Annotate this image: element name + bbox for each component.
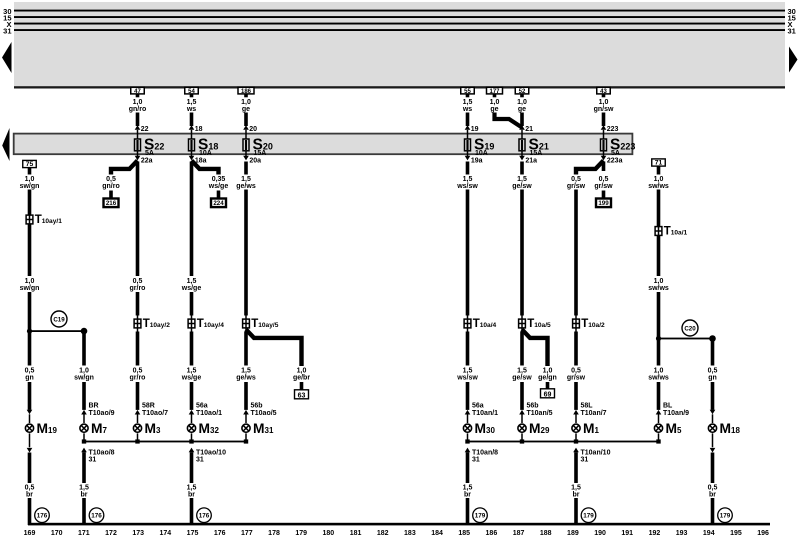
- svg-text:gn: gn: [708, 374, 717, 381]
- svg-text:ge: ge: [518, 106, 526, 113]
- svg-text:186: 186: [486, 530, 498, 537]
- svg-text:gr/ro: gr/ro: [130, 285, 146, 292]
- svg-text:T10an/1: T10an/1: [472, 410, 498, 417]
- svg-text:T10ao/7: T10ao/7: [142, 410, 168, 417]
- svg-text:22a: 22a: [141, 157, 153, 164]
- svg-text:T10an/7: T10an/7: [581, 410, 607, 417]
- svg-text:190: 190: [594, 530, 606, 537]
- svg-text:179: 179: [583, 513, 594, 520]
- svg-text:58R: 58R: [142, 403, 155, 410]
- svg-text:ws/ge: ws/ge: [181, 374, 202, 381]
- svg-text:194: 194: [703, 530, 715, 537]
- svg-text:ge/ws: ge/ws: [236, 183, 256, 190]
- svg-text:sw/gn: sw/gn: [20, 285, 40, 292]
- svg-text:T10an/8: T10an/8: [472, 449, 498, 456]
- svg-text:20a: 20a: [249, 157, 261, 164]
- svg-text:180: 180: [323, 530, 335, 537]
- svg-text:C20: C20: [684, 326, 696, 333]
- svg-text:5A: 5A: [611, 150, 620, 157]
- svg-text:ws/ge: ws/ge: [208, 183, 229, 190]
- svg-text:ws/sw: ws/sw: [456, 374, 478, 381]
- svg-text:181: 181: [350, 530, 362, 537]
- svg-text:191: 191: [621, 530, 633, 537]
- svg-text:179: 179: [475, 513, 486, 520]
- svg-text:br: br: [464, 491, 471, 498]
- svg-text:T10an/10: T10an/10: [581, 449, 611, 456]
- svg-text:C19: C19: [53, 317, 65, 324]
- svg-text:gn: gn: [25, 374, 34, 381]
- svg-text:175: 175: [187, 530, 199, 537]
- svg-text:176: 176: [214, 530, 226, 537]
- svg-text:T10ao/10: T10ao/10: [196, 449, 226, 456]
- svg-text:br: br: [81, 491, 88, 498]
- svg-text:56b: 56b: [527, 403, 539, 410]
- svg-text:br: br: [709, 491, 716, 498]
- svg-text:gr/sw: gr/sw: [594, 183, 613, 190]
- svg-text:171: 171: [78, 530, 90, 537]
- svg-text:gn/ro: gn/ro: [129, 106, 147, 113]
- svg-text:sw/gn: sw/gn: [20, 183, 40, 190]
- svg-text:174: 174: [160, 530, 172, 537]
- svg-text:31: 31: [581, 457, 589, 464]
- svg-text:22: 22: [141, 126, 149, 133]
- svg-text:193: 193: [676, 530, 688, 537]
- svg-text:gn/ro: gn/ro: [102, 183, 120, 190]
- svg-text:br: br: [573, 491, 580, 498]
- svg-text:10A: 10A: [475, 150, 488, 157]
- svg-text:ge/ws: ge/ws: [236, 374, 256, 381]
- svg-text:189: 189: [567, 530, 579, 537]
- svg-text:21a: 21a: [525, 157, 537, 164]
- svg-text:182: 182: [377, 530, 389, 537]
- svg-text:gn/sw: gn/sw: [594, 106, 614, 113]
- svg-text:172: 172: [105, 530, 117, 537]
- svg-text:223: 223: [607, 126, 619, 133]
- svg-text:br: br: [26, 491, 33, 498]
- svg-text:216: 216: [106, 200, 117, 207]
- svg-text:ge: ge: [242, 106, 250, 113]
- svg-text:71: 71: [655, 160, 663, 167]
- svg-text:192: 192: [649, 530, 661, 537]
- svg-text:169: 169: [24, 530, 36, 537]
- svg-text:196: 196: [757, 530, 769, 537]
- svg-text:176: 176: [91, 513, 102, 520]
- svg-text:31: 31: [89, 457, 97, 464]
- svg-text:BL: BL: [663, 403, 673, 410]
- svg-text:56b: 56b: [251, 403, 263, 410]
- svg-text:ge/br: ge/br: [293, 374, 310, 381]
- svg-text:179: 179: [295, 530, 307, 537]
- svg-text:195: 195: [730, 530, 742, 537]
- svg-text:177: 177: [241, 530, 253, 537]
- svg-text:223a: 223a: [607, 157, 623, 164]
- svg-text:31: 31: [196, 457, 204, 464]
- svg-text:199: 199: [598, 200, 609, 207]
- svg-text:gr/ro: gr/ro: [130, 374, 146, 381]
- svg-text:ge/gn: ge/gn: [538, 374, 557, 381]
- svg-text:ge/sw: ge/sw: [512, 183, 532, 190]
- svg-text:224: 224: [213, 200, 224, 207]
- svg-text:173: 173: [132, 530, 144, 537]
- svg-text:31: 31: [3, 27, 11, 36]
- svg-text:ws/ge: ws/ge: [181, 285, 202, 292]
- svg-text:T10ao/8: T10ao/8: [89, 449, 115, 456]
- svg-text:15A: 15A: [254, 150, 267, 157]
- svg-text:BR: BR: [89, 403, 99, 410]
- svg-text:sw/gn: sw/gn: [74, 374, 94, 381]
- svg-text:21: 21: [525, 126, 533, 133]
- svg-text:56a: 56a: [472, 403, 484, 410]
- svg-text:T10an/5: T10an/5: [527, 410, 553, 417]
- svg-text:176: 176: [199, 513, 210, 520]
- svg-text:T10ao/9: T10ao/9: [89, 410, 115, 417]
- svg-text:gr/sw: gr/sw: [567, 374, 586, 381]
- svg-text:179: 179: [720, 513, 731, 520]
- svg-text:ge/sw: ge/sw: [512, 374, 532, 381]
- svg-text:183: 183: [404, 530, 416, 537]
- svg-text:75: 75: [26, 161, 34, 168]
- svg-text:T10an/9: T10an/9: [663, 410, 689, 417]
- svg-text:sw/ws: sw/ws: [648, 183, 669, 190]
- svg-text:31: 31: [788, 27, 796, 36]
- svg-text:gr/sw: gr/sw: [567, 183, 586, 190]
- svg-text:10A: 10A: [199, 150, 212, 157]
- svg-text:sw/ws: sw/ws: [648, 374, 669, 381]
- svg-text:188: 188: [540, 530, 552, 537]
- svg-text:18: 18: [195, 126, 203, 133]
- svg-text:19a: 19a: [471, 157, 483, 164]
- svg-text:T10ao/5: T10ao/5: [251, 410, 277, 417]
- svg-text:69: 69: [544, 391, 552, 398]
- svg-text:63: 63: [298, 392, 306, 399]
- svg-text:T10ao/1: T10ao/1: [196, 410, 222, 417]
- svg-text:19: 19: [471, 126, 479, 133]
- svg-text:ge: ge: [490, 106, 498, 113]
- svg-text:187: 187: [513, 530, 525, 537]
- svg-text:br: br: [188, 491, 195, 498]
- svg-text:5A: 5A: [145, 150, 154, 157]
- svg-text:56a: 56a: [196, 403, 208, 410]
- svg-text:20: 20: [249, 126, 257, 133]
- svg-text:sw/ws: sw/ws: [648, 285, 669, 292]
- svg-text:58L: 58L: [581, 403, 594, 410]
- svg-text:185: 185: [458, 530, 470, 537]
- svg-text:ws: ws: [462, 106, 472, 113]
- svg-text:178: 178: [268, 530, 280, 537]
- svg-text:184: 184: [431, 530, 443, 537]
- svg-text:ws: ws: [186, 106, 196, 113]
- svg-text:ws/sw: ws/sw: [456, 183, 478, 190]
- svg-text:15A: 15A: [530, 150, 543, 157]
- svg-text:176: 176: [37, 513, 48, 520]
- svg-text:31: 31: [472, 457, 480, 464]
- svg-text:170: 170: [51, 530, 63, 537]
